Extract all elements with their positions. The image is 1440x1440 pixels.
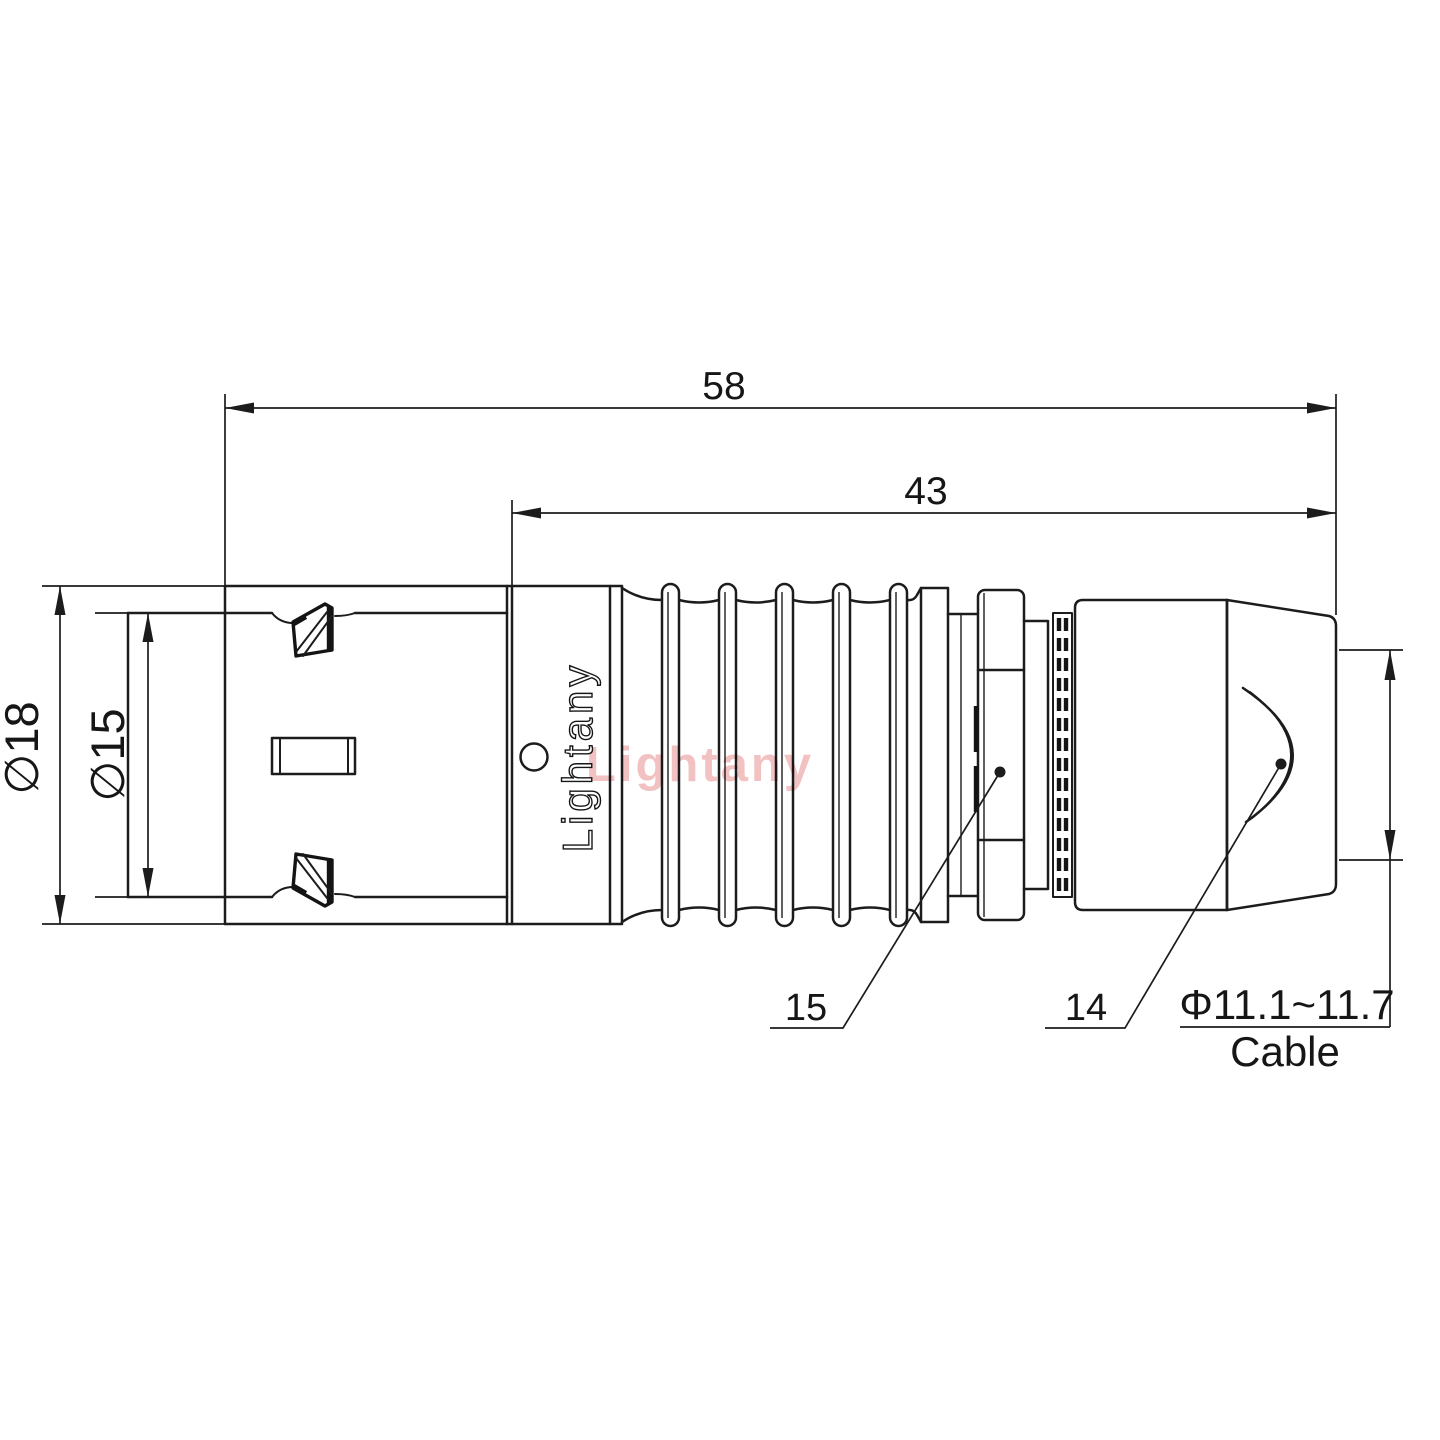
- dim-value-43: 43: [904, 470, 947, 513]
- boot-end-flange: [921, 588, 948, 922]
- body-circle-marking: [521, 744, 548, 771]
- arrowhead-top-cable: [1385, 650, 1396, 680]
- latch-bottom: [272, 854, 355, 906]
- flange-edges: [921, 588, 948, 922]
- extension-lines-cable: [1339, 650, 1403, 860]
- thread-strip: [1053, 613, 1072, 897]
- dim-value-d18: ∅18: [0, 701, 48, 794]
- ref-label-collar: 15: [770, 767, 1006, 1030]
- extension-lines-58: [225, 394, 1336, 615]
- neck2-edges: [1024, 621, 1048, 889]
- cable-word: Cable: [1230, 1028, 1340, 1075]
- ref-number-15: 15: [785, 987, 827, 1029]
- arrowhead-left-43: [512, 508, 541, 519]
- connector-drawing: Lightany Lightany 58 43 ∅18 ∅15 15: [0, 0, 1440, 1440]
- arrowhead-bottom-cable: [1385, 830, 1396, 860]
- cable-diameter-range: Φ11.1~11.7: [1179, 981, 1394, 1028]
- dim-rear-length: 43: [512, 470, 1336, 585]
- dim-coupling-diameter: ∅15: [81, 613, 154, 897]
- arrowhead-top-d18: [55, 586, 66, 615]
- nut-cone: [1227, 600, 1336, 910]
- leader-dot-14: [1276, 759, 1287, 770]
- arrowhead-bottom-d18: [55, 895, 66, 924]
- thread-teeth: [1059, 618, 1066, 892]
- dim-value-d15: ∅15: [81, 708, 134, 801]
- technical-drawing-page: Lightany Lightany 58 43 ∅18 ∅15 15: [0, 0, 1440, 1440]
- ref-number-14: 14: [1065, 987, 1107, 1029]
- leader-dot-15: [995, 767, 1006, 778]
- dim-total-length: 58: [225, 365, 1336, 615]
- latch-top: [272, 604, 355, 656]
- neck-edges: [948, 614, 978, 896]
- arrowhead-top-d15: [143, 613, 154, 642]
- arrowhead-right-58: [1307, 403, 1336, 414]
- collar-part-15: [978, 590, 1024, 920]
- backshell-nut: [1075, 600, 1336, 910]
- watermark-text: Lightany: [586, 738, 814, 792]
- rib-4: [833, 584, 850, 926]
- rib-5: [890, 584, 907, 926]
- coupling-slot-window: [272, 738, 355, 774]
- arrowhead-bottom-d15: [143, 868, 154, 897]
- body-logo-text: Lightany: [554, 662, 601, 853]
- slot-window: [272, 738, 355, 774]
- arrowhead-right-43: [1307, 508, 1336, 519]
- dim-value-58: 58: [702, 365, 745, 408]
- band-left-edges: [507, 586, 512, 924]
- rear-assembly: [948, 590, 1072, 920]
- front-tube: [128, 613, 507, 897]
- slot-window-inner-edges: [280, 738, 348, 774]
- arrowhead-left-58: [225, 403, 254, 414]
- nut-cylinder: [1075, 600, 1227, 910]
- thread-strip-outline: [1053, 613, 1072, 897]
